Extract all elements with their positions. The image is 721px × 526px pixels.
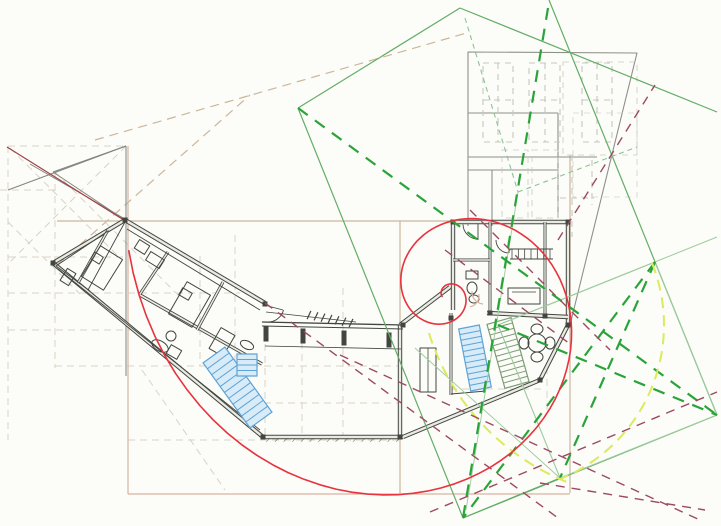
r-shape	[179, 288, 193, 300]
layer-upper-floor-overlay	[468, 52, 637, 325]
po-shape	[261, 435, 266, 440]
a-shape	[463, 225, 478, 240]
c-shape	[166, 331, 176, 341]
l-shape	[142, 370, 225, 490]
l-shape	[465, 18, 518, 192]
l-shape	[262, 326, 403, 329]
bed-2	[169, 282, 211, 328]
colonnade-posts	[342, 331, 347, 346]
red-diagonal	[7, 147, 127, 222]
l-shape	[298, 108, 463, 518]
po-shape	[398, 435, 403, 440]
12-tread	[503, 376, 527, 383]
a-shape	[428, 331, 566, 481]
l-shape	[10, 148, 120, 258]
po-shape	[123, 218, 128, 223]
rotated-golden-rectangle	[498, 262, 717, 478]
12-tread	[502, 371, 526, 378]
e-shape	[239, 338, 255, 351]
floor-plan-drawing	[0, 0, 721, 526]
po-shape	[538, 378, 543, 383]
7-tick	[307, 311, 311, 319]
l-shape	[262, 322, 403, 325]
7-tick	[349, 319, 353, 327]
w-shape-core	[140, 252, 168, 294]
l-shape	[10, 146, 126, 262]
12-tread	[497, 355, 521, 362]
l-shape	[56, 231, 108, 266]
l-shape	[298, 8, 460, 108]
po-shape	[449, 316, 454, 321]
l-shape	[57, 95, 250, 265]
7-tick	[321, 314, 325, 322]
layer-grey-construction	[7, 146, 127, 376]
wing-top-wall-core	[125, 220, 265, 303]
colonnade-posts	[264, 327, 269, 342]
floor-plan-page	[0, 0, 721, 526]
e-shape	[531, 352, 543, 362]
po-shape	[543, 314, 548, 319]
po-shape	[51, 261, 56, 266]
toilet	[466, 271, 478, 279]
po-shape	[401, 323, 406, 328]
12-tread	[499, 360, 523, 367]
l-shape	[498, 325, 717, 415]
l-shape	[265, 303, 558, 518]
e-shape	[531, 324, 543, 334]
po-shape	[566, 323, 571, 328]
po-shape	[488, 311, 493, 316]
wing-bottom-wall-core	[53, 263, 263, 437]
colonnade-posts	[301, 329, 306, 344]
l-shape	[95, 32, 470, 140]
r-shape	[532, 150, 558, 218]
l-shape	[8, 222, 80, 294]
l-shape	[463, 8, 548, 518]
r-shape	[563, 62, 637, 155]
l-shape	[540, 483, 705, 510]
l-shape	[53, 172, 125, 220]
a-shape	[267, 310, 284, 322]
layer-green-dashed-thin	[465, 18, 637, 192]
12-tread	[500, 366, 524, 373]
yellow-quarter-arc	[560, 263, 664, 479]
7-tick	[314, 312, 318, 320]
l-shape	[265, 346, 401, 349]
